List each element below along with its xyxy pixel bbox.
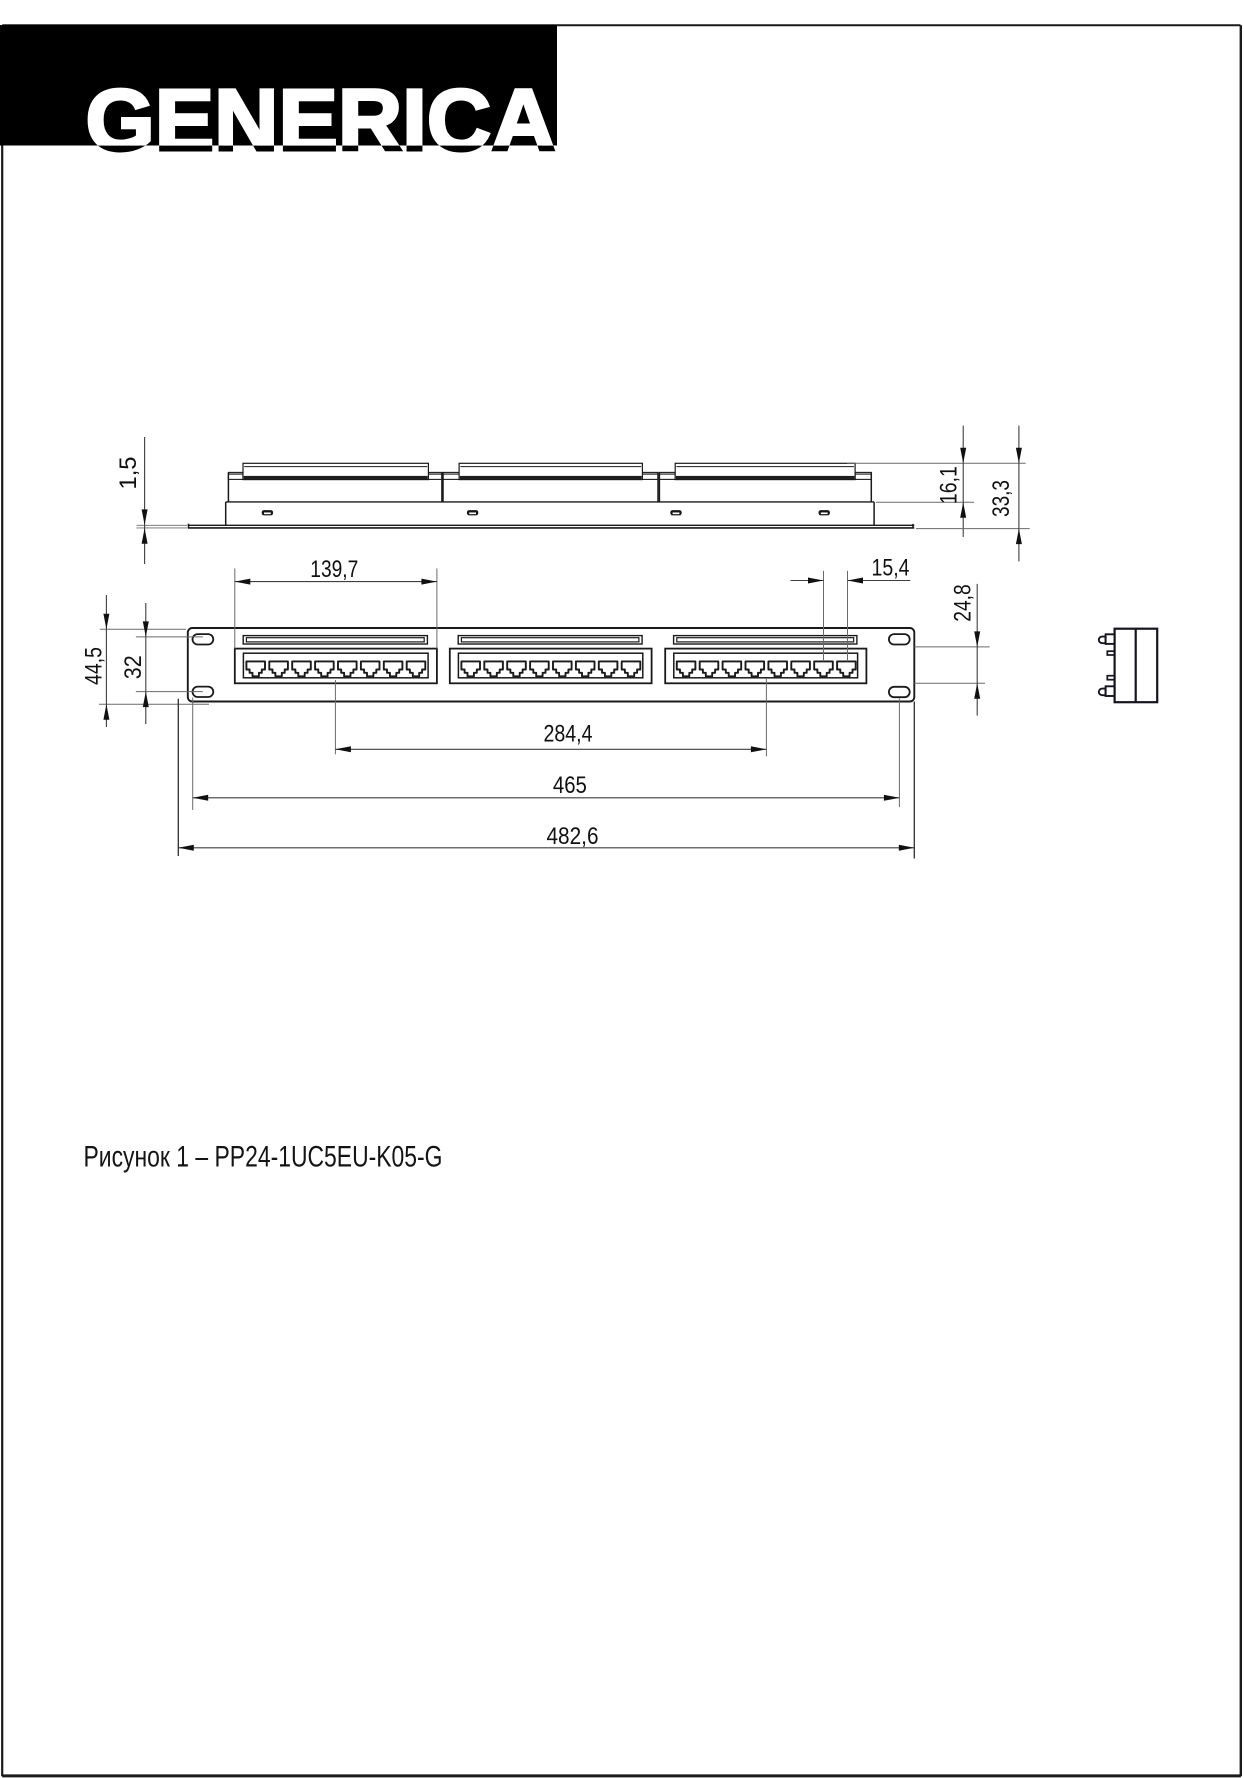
svg-text:284,4: 284,4	[544, 721, 593, 748]
svg-text:16,1: 16,1	[935, 466, 962, 504]
svg-text:32: 32	[120, 655, 147, 679]
svg-text:139,7: 139,7	[310, 556, 358, 583]
svg-text:Рисунок 1 – PP24-1UC5EU-K05-G: Рисунок 1 – PP24-1UC5EU-K05-G	[84, 1140, 443, 1173]
svg-text:1,5: 1,5	[115, 457, 142, 490]
svg-text:482,6: 482,6	[547, 823, 599, 850]
svg-text:465: 465	[553, 772, 587, 799]
svg-text:33,3: 33,3	[988, 480, 1015, 517]
svg-text:15,4: 15,4	[872, 555, 910, 582]
svg-text:24,8: 24,8	[949, 584, 976, 622]
svg-text:44,5: 44,5	[81, 647, 108, 685]
